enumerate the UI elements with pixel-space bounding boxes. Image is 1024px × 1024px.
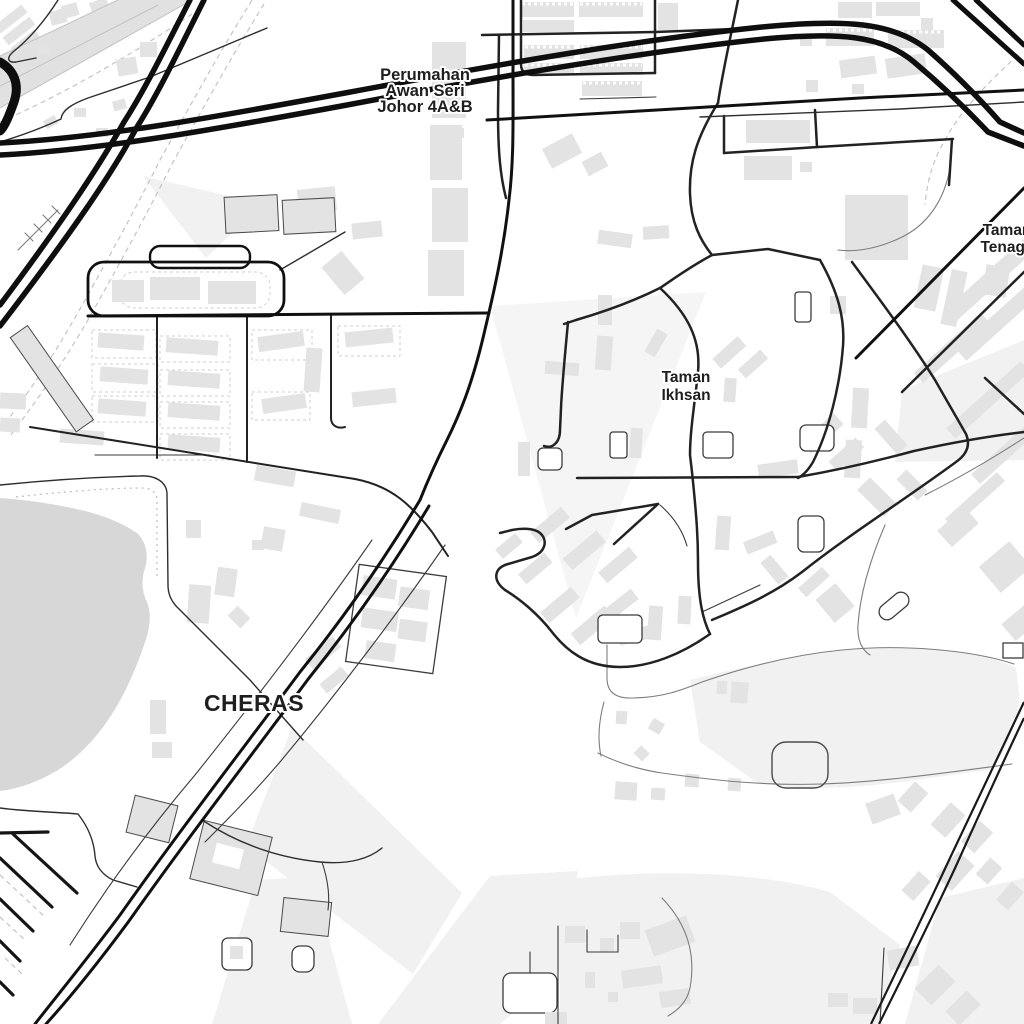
main-roads-layer [0, 0, 1024, 1024]
map-canvas[interactable]: Perumahan Awan Seri Johor 4A&B Taman Ikh… [0, 0, 1024, 1024]
lake [0, 498, 150, 791]
label-taman-tenaga-line2: Tenaga [980, 239, 1024, 256]
label-cheras: CHERAS [204, 690, 304, 716]
label-taman-ikhsan-line1: Taman [662, 369, 711, 386]
map-viewport: Perumahan Awan Seri Johor 4A&B Taman Ikh… [0, 0, 1024, 1024]
label-perumahan-line3: Johor 4A&B [377, 98, 472, 116]
label-taman-tenaga-line1: Taman [983, 222, 1024, 239]
label-taman-ikhsan-line2: Ikhsan [661, 387, 710, 404]
field [690, 648, 1020, 788]
open-area [895, 340, 1024, 462]
